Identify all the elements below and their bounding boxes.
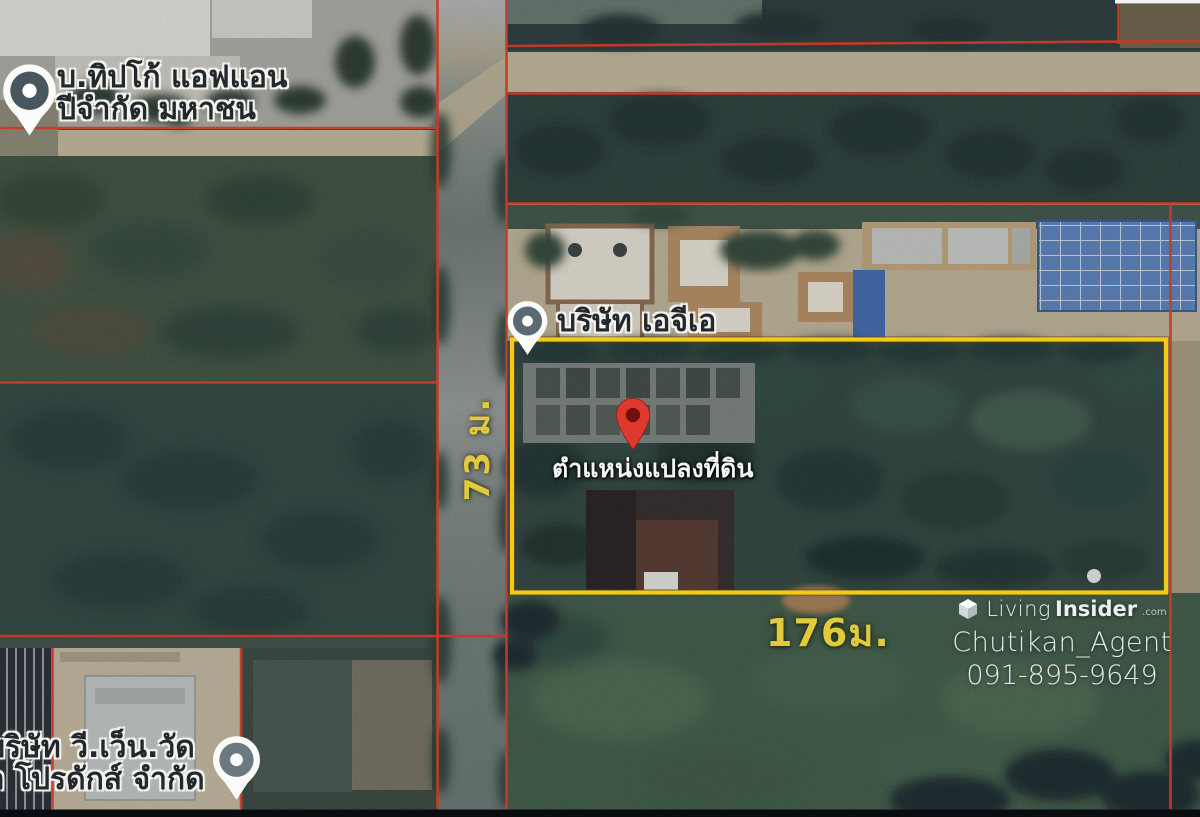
poi-pin-tipco	[1, 63, 58, 141]
map-pin-icon	[211, 735, 262, 801]
plot-marker-label: ตำแหน่งแปลงที่ดิน	[552, 449, 742, 489]
frontage-measurement-label: 176ม.	[766, 602, 890, 663]
poi-pin-aga	[506, 300, 549, 360]
watermark: LivingInsider.com Chutikan_Agent 091-895…	[950, 597, 1174, 691]
plot-location-pin	[614, 396, 652, 456]
agent-phone: 091-895-9649	[950, 660, 1174, 691]
brand-row: LivingInsider.com	[950, 597, 1174, 621]
annotation-overlay: บ.ทิปโก้ แอฟแอน ปีจำกัด มหาชน บริษัท เอจ…	[0, 0, 1200, 817]
poi-label-tipco: บ.ทิปโก้ แอฟแอน ปีจำกัด มหาชน	[57, 62, 287, 126]
poi-label-vn-line1: บริษัท วี.เว็น.วัด	[0, 732, 205, 764]
map-pin-icon	[506, 300, 549, 356]
agent-name: Chutikan_Agent	[950, 627, 1174, 658]
poi-pin-vn	[211, 735, 262, 805]
brand-name-second: Insider	[1055, 597, 1137, 621]
poi-label-vn: บริษัท วี.เว็น.วัด ล โปรดักส์ จำกัด	[0, 732, 205, 796]
poi-label-tipco-line1: บ.ทิปโก้ แอฟแอน	[57, 62, 287, 94]
depth-measurement-label: 73 ม.	[450, 397, 504, 501]
poi-label-vn-line2: ล โปรดักส์ จำกัด	[0, 764, 205, 796]
satellite-map-image: บ.ทิปโก้ แอฟแอน ปีจำกัด มหาชน บริษัท เอจ…	[0, 0, 1200, 817]
poi-label-tipco-line2: ปีจำกัด มหาชน	[57, 94, 287, 126]
map-pin-icon	[1, 63, 58, 137]
poi-label-aga: บริษัท เอจีเอ	[557, 306, 716, 338]
red-pin-icon	[614, 396, 652, 452]
brand-logo-icon	[957, 598, 979, 620]
brand-tld: .com	[1142, 607, 1167, 618]
brand-name-first: Living	[986, 597, 1051, 621]
